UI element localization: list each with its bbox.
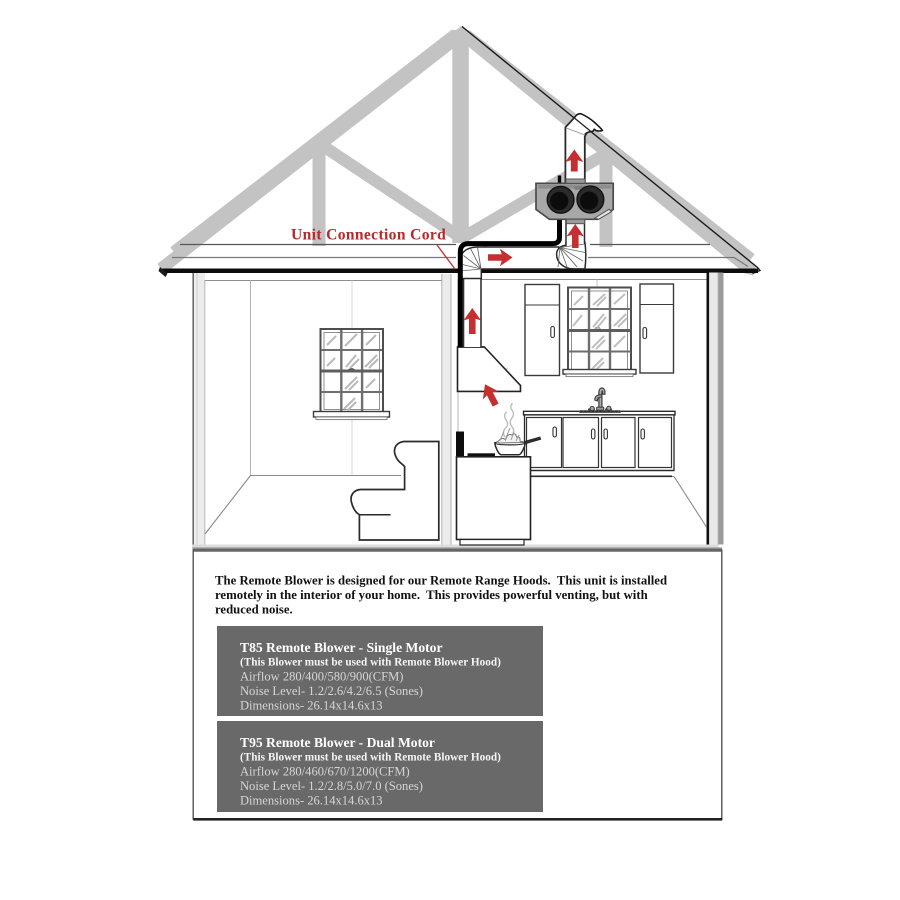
svg-text:Airflow 280/400/580/900(CFM): Airflow 280/400/580/900(CFM)	[240, 670, 403, 684]
svg-text:Noise Level- 1.2/2.8/5.0/7.0 (: Noise Level- 1.2/2.8/5.0/7.0 (Sones)	[240, 779, 423, 793]
svg-text:Airflow 280/460/670/1200(CFM): Airflow 280/460/670/1200(CFM)	[240, 765, 410, 779]
svg-text:(This Blower must be used with: (This Blower must be used with Remote Bl…	[240, 752, 501, 764]
svg-text:Noise Level- 1.2/2.6/4.2/6.5 (: Noise Level- 1.2/2.6/4.2/6.5 (Sones)	[240, 684, 423, 698]
svg-text:(This Blower must be used with: (This Blower must be used with Remote Bl…	[240, 657, 501, 669]
svg-text:Dimensions- 26.14x14.6x13: Dimensions- 26.14x14.6x13	[240, 794, 383, 808]
svg-text:Dimensions- 26.14x14.6x13: Dimensions- 26.14x14.6x13	[240, 699, 383, 713]
svg-text:remotely in the interior of yo: remotely in the interior of your home. T…	[215, 588, 648, 602]
svg-text:T85 Remote Blower - Single Mot: T85 Remote Blower - Single Motor	[240, 640, 442, 655]
svg-text:reduced noise.: reduced noise.	[215, 603, 293, 617]
svg-text:The Remote Blower is designed: The Remote Blower is designed for our Re…	[215, 574, 667, 588]
svg-text:Unit Connection Cord: Unit Connection Cord	[291, 227, 446, 244]
svg-text:T95 Remote Blower - Dual Motor: T95 Remote Blower - Dual Motor	[240, 735, 435, 750]
